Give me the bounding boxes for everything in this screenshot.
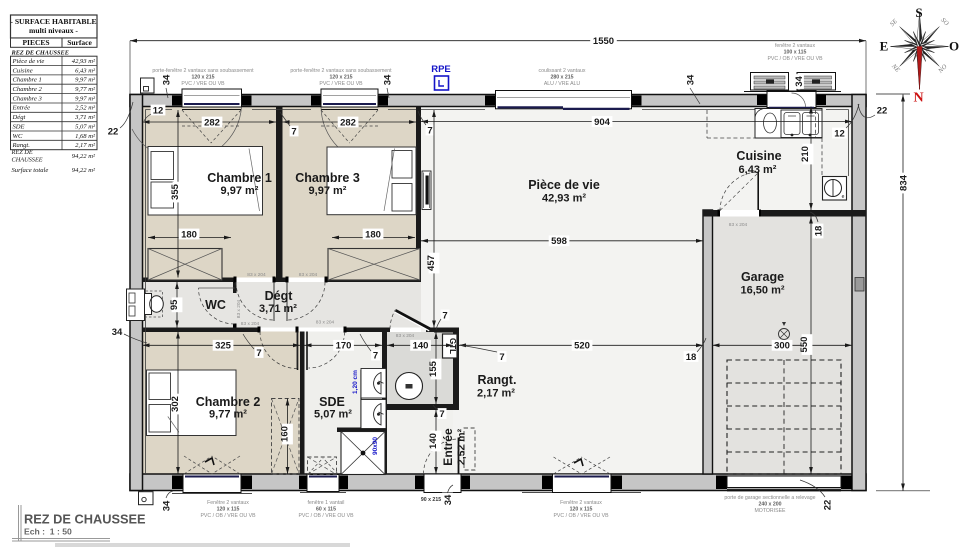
svg-text:O: O — [949, 39, 959, 54]
svg-text:282: 282 — [204, 117, 220, 128]
svg-text:Ech : 1 : 50: Ech : 1 : 50 — [24, 527, 72, 537]
svg-text:904: 904 — [594, 117, 611, 128]
svg-text:RPE: RPE — [431, 64, 451, 75]
svg-text:Chambre 1: Chambre 1 — [207, 171, 272, 185]
svg-text:S: S — [915, 5, 922, 20]
svg-text:WC: WC — [205, 298, 226, 312]
svg-text:PVC / OB / VRE OU VB: PVC / OB / VRE OU VB — [298, 513, 354, 519]
svg-text:83 x 204: 83 x 204 — [247, 272, 266, 278]
svg-text:Chambre 2: Chambre 2 — [196, 395, 261, 409]
svg-text:120 x 215: 120 x 215 — [329, 75, 352, 81]
svg-text:9,77 m²: 9,77 m² — [75, 86, 96, 93]
svg-text:PVC / OB / VRE OU VB: PVC / OB / VRE OU VB — [767, 56, 823, 62]
svg-text:- SURFACE HABITABLE: - SURFACE HABITABLE — [10, 17, 96, 26]
svg-text:Surface totale: Surface totale — [12, 167, 49, 174]
svg-text:180: 180 — [365, 229, 381, 240]
svg-text:520: 520 — [574, 341, 590, 352]
svg-text:PVC / OB / VRE OU VB: PVC / OB / VRE OU VB — [553, 513, 609, 519]
svg-text:Cuisine: Cuisine — [13, 67, 33, 74]
svg-text:34: 34 — [794, 76, 805, 87]
svg-text:REZ DE CHAUSSEE: REZ DE CHAUSSEE — [11, 50, 69, 57]
svg-text:porte-fenêtre 2 vantaux sans s: porte-fenêtre 2 vantaux sans soubassemen… — [152, 68, 254, 74]
svg-text:60 x 115: 60 x 115 — [316, 507, 336, 513]
svg-text:Surface: Surface — [67, 38, 92, 47]
svg-text:280 x 215: 280 x 215 — [550, 75, 573, 81]
svg-text:fenêtre 1 vantail: fenêtre 1 vantail — [308, 500, 345, 506]
svg-text:120 x 115: 120 x 115 — [217, 507, 240, 513]
svg-text:3,71 m²: 3,71 m² — [259, 303, 297, 315]
svg-text:18: 18 — [813, 226, 824, 237]
svg-text:9,97 m²: 9,97 m² — [75, 95, 96, 102]
svg-text:7: 7 — [427, 125, 432, 136]
svg-text:Dégt: Dégt — [265, 289, 294, 303]
svg-text:90x90: 90x90 — [372, 437, 379, 455]
svg-text:REZ DE: REZ DE — [11, 149, 33, 156]
svg-text:140: 140 — [428, 433, 439, 449]
svg-text:210: 210 — [800, 146, 811, 162]
svg-text:6,43 m²: 6,43 m² — [75, 67, 96, 74]
svg-text:180: 180 — [181, 229, 197, 240]
svg-text:83 x 204: 83 x 204 — [299, 272, 318, 278]
svg-text:N: N — [913, 91, 923, 106]
svg-text:REZ DE CHAUSSEE: REZ DE CHAUSSEE — [24, 512, 146, 527]
svg-text:Chambre 3: Chambre 3 — [13, 95, 43, 102]
svg-text:fenêtre 2 vantaux: fenêtre 2 vantaux — [775, 43, 815, 49]
svg-text:12: 12 — [834, 128, 845, 139]
svg-text:5,07 m²: 5,07 m² — [314, 409, 352, 421]
svg-text:83 x 204: 83 x 204 — [241, 321, 260, 327]
svg-text:120 x 215: 120 x 215 — [191, 75, 214, 81]
svg-text:MOTORISEE: MOTORISEE — [754, 508, 786, 514]
svg-text:94,22 m²: 94,22 m² — [72, 153, 96, 160]
svg-text:multi niveaux -: multi niveaux - — [29, 26, 78, 35]
svg-text:34: 34 — [443, 494, 454, 505]
svg-text:834: 834 — [898, 174, 909, 191]
svg-text:SDE: SDE — [13, 123, 25, 130]
svg-text:Entrée: Entrée — [441, 428, 455, 466]
svg-text:Entrée: Entrée — [12, 105, 31, 112]
svg-text:Chambre 2: Chambre 2 — [13, 86, 43, 93]
svg-text:7: 7 — [439, 409, 444, 420]
svg-text:Pièce de vie: Pièce de vie — [528, 178, 600, 192]
svg-text:Chambre 3: Chambre 3 — [295, 171, 360, 185]
svg-text:34: 34 — [382, 74, 393, 85]
svg-text:Fenêtre 2 vantaux: Fenêtre 2 vantaux — [560, 500, 602, 506]
svg-text:7: 7 — [442, 310, 447, 321]
svg-text:PIECES: PIECES — [22, 38, 49, 47]
svg-text:140: 140 — [413, 341, 429, 352]
svg-text:SDE: SDE — [319, 395, 345, 409]
svg-text:Cuisine: Cuisine — [736, 149, 781, 163]
svg-text:457: 457 — [426, 255, 437, 271]
svg-text:300: 300 — [774, 341, 790, 352]
svg-text:598: 598 — [551, 236, 567, 247]
svg-text:9,77 m²: 9,77 m² — [209, 409, 247, 421]
svg-text:porte de garage sectionnelle a: porte de garage sectionnelle a relevage — [724, 495, 815, 501]
svg-text:42,93 m²: 42,93 m² — [72, 58, 96, 65]
svg-text:9,97 m²: 9,97 m² — [309, 185, 347, 197]
svg-text:83 x 204: 83 x 204 — [236, 299, 242, 318]
svg-text:2,17 m²: 2,17 m² — [477, 388, 515, 400]
svg-text:9,97 m²: 9,97 m² — [75, 77, 96, 84]
svg-text:porte-fenêtre 2 vantaux sans s: porte-fenêtre 2 vantaux sans soubassemen… — [290, 68, 392, 74]
svg-text:12: 12 — [153, 105, 164, 116]
svg-text:282: 282 — [340, 117, 356, 128]
svg-text:160: 160 — [280, 426, 291, 442]
svg-text:PVC / VRE OU VB: PVC / VRE OU VB — [181, 81, 225, 87]
svg-text:155: 155 — [428, 360, 439, 377]
svg-text:22: 22 — [108, 126, 119, 137]
svg-text:7: 7 — [373, 350, 378, 361]
svg-text:1550: 1550 — [593, 36, 614, 47]
svg-text:E: E — [880, 39, 889, 54]
svg-text:94,22 m²: 94,22 m² — [72, 167, 96, 174]
svg-text:ALU / VRE ALU: ALU / VRE ALU — [544, 81, 581, 87]
svg-text:34: 34 — [161, 74, 172, 85]
svg-text:e: e — [842, 194, 845, 200]
svg-text:34: 34 — [685, 74, 696, 85]
svg-text:WC: WC — [13, 133, 23, 140]
svg-text:34: 34 — [112, 327, 123, 338]
svg-text:Dégt: Dégt — [12, 114, 26, 121]
svg-text:302: 302 — [170, 396, 181, 412]
svg-text:16,50 m²: 16,50 m² — [740, 285, 784, 297]
svg-text:34: 34 — [161, 500, 172, 511]
svg-text:95: 95 — [169, 299, 180, 310]
svg-text:6,43 m²: 6,43 m² — [739, 164, 777, 176]
svg-text:2,52 m²: 2,52 m² — [75, 105, 96, 112]
svg-text:18: 18 — [686, 352, 697, 363]
svg-text:7: 7 — [499, 352, 504, 363]
svg-text:240 x 200: 240 x 200 — [758, 502, 781, 508]
svg-text:120 x 115: 120 x 115 — [570, 507, 593, 513]
svg-text:3,71 m²: 3,71 m² — [74, 114, 96, 121]
svg-text:Garage: Garage — [741, 270, 784, 284]
svg-text:83 x 204: 83 x 204 — [729, 222, 748, 228]
svg-text:22: 22 — [877, 105, 888, 116]
svg-text:7: 7 — [291, 126, 296, 137]
svg-text:355: 355 — [170, 183, 181, 200]
svg-text:83 x 204: 83 x 204 — [316, 320, 335, 326]
svg-text:Pièce de vie: Pièce de vie — [12, 58, 45, 65]
svg-text:83 x 204: 83 x 204 — [396, 333, 415, 339]
svg-text:PVC / VRE OU VB: PVC / VRE OU VB — [319, 81, 363, 87]
svg-text:7: 7 — [256, 348, 261, 359]
svg-text:90 x 215: 90 x 215 — [421, 497, 441, 503]
svg-text:550: 550 — [799, 337, 810, 353]
svg-text:Rangt.: Rangt. — [478, 373, 517, 387]
svg-text:Chambre 1: Chambre 1 — [13, 77, 42, 84]
svg-text:22: 22 — [822, 500, 833, 511]
svg-text:170: 170 — [336, 341, 352, 352]
svg-text:1,20 cm: 1,20 cm — [352, 370, 359, 394]
svg-text:325: 325 — [215, 341, 232, 352]
svg-text:Fenêtre 2 vantaux: Fenêtre 2 vantaux — [207, 500, 249, 506]
svg-text:2,17 m²: 2,17 m² — [75, 142, 96, 149]
svg-text:1,68 m²: 1,68 m² — [75, 133, 96, 140]
svg-text:5,07 m²: 5,07 m² — [75, 123, 96, 130]
svg-text:CHAUSSEE: CHAUSSEE — [12, 157, 43, 164]
svg-text:9,97 m²: 9,97 m² — [221, 185, 259, 197]
svg-text:2,52 m²: 2,52 m² — [456, 428, 468, 465]
svg-text:PVC / OB / VRE OU VB: PVC / OB / VRE OU VB — [200, 513, 256, 519]
svg-text:42,93 m²: 42,93 m² — [542, 193, 586, 205]
svg-text:100 x 115: 100 x 115 — [784, 50, 807, 56]
svg-text:coulissant 2 vantaux: coulissant 2 vantaux — [538, 68, 585, 74]
